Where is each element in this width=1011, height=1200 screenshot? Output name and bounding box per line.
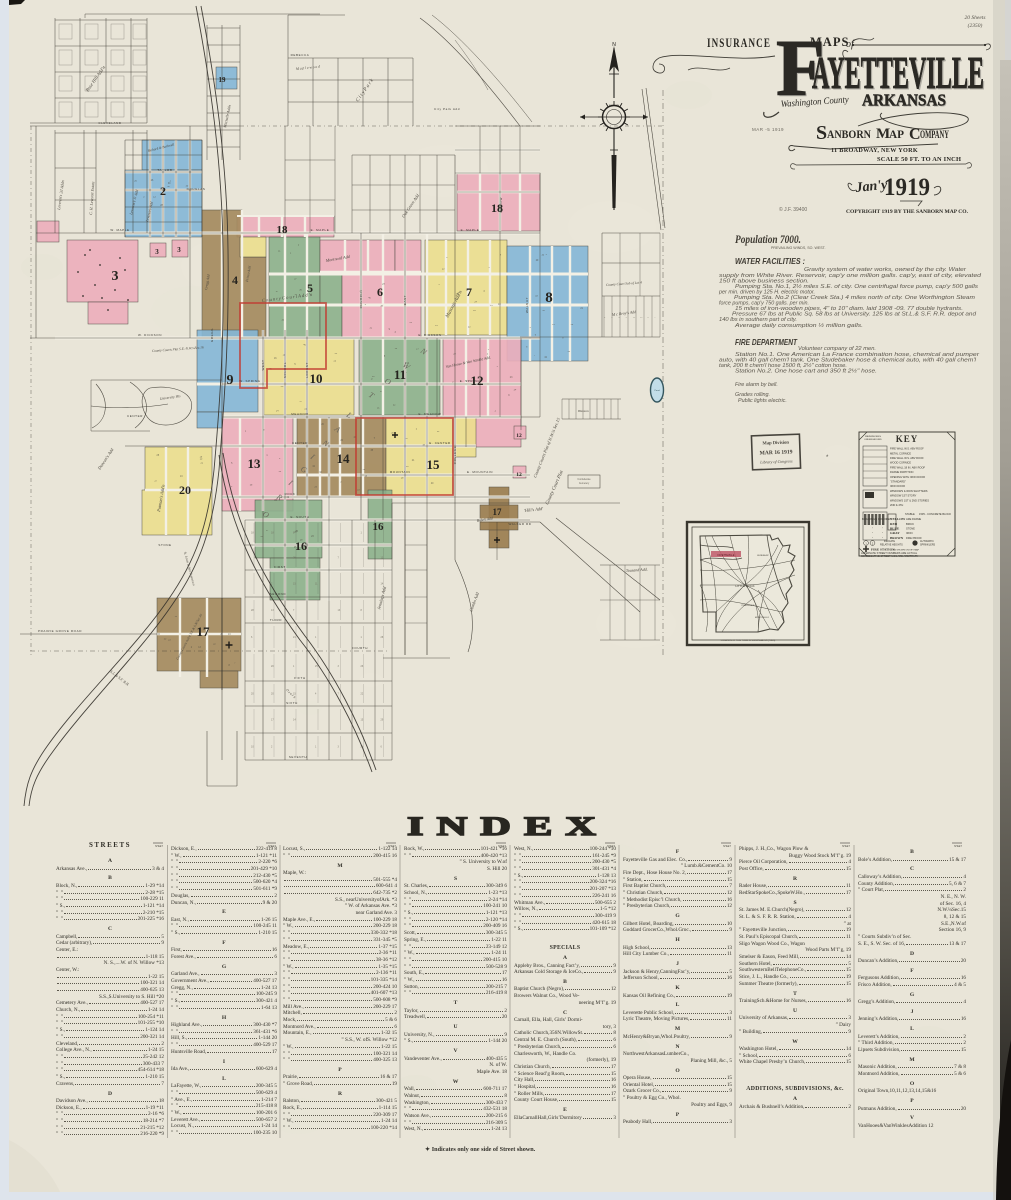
svg-text:9: 9 bbox=[227, 373, 234, 388]
svg-text:(2350): (2350) bbox=[968, 22, 983, 29]
svg-text:MAR -5 1919: MAR -5 1919 bbox=[752, 127, 784, 132]
svg-text:3: 3 bbox=[112, 269, 119, 284]
svg-text:12: 12 bbox=[516, 433, 522, 439]
svg-text:E. MAPLE: E. MAPLE bbox=[311, 228, 330, 232]
svg-text:MAR 16 1919: MAR 16 1919 bbox=[759, 449, 792, 456]
svg-text:N: N bbox=[612, 42, 616, 48]
svg-text:City Park Add: City Park Add bbox=[434, 107, 460, 111]
svg-text:WINDOW 1ST STORY: WINDOW 1ST STORY bbox=[890, 494, 917, 498]
svg-text:Pond: Pond bbox=[654, 390, 660, 392]
svg-text:16: 16 bbox=[373, 521, 385, 533]
svg-text:Average daily consumption ½ mi: Average daily consumption ½ million gall… bbox=[734, 322, 863, 329]
svg-text:STONE: STONE bbox=[906, 527, 915, 531]
svg-text:ANBORN: ANBORN bbox=[827, 127, 871, 141]
svg-text:RED: RED bbox=[890, 522, 898, 526]
svg-text:”: ” bbox=[882, 527, 883, 531]
svg-text:Cemetery: Cemetery bbox=[579, 482, 590, 485]
svg-text:PRAIRIE GROVE ROAD: PRAIRIE GROVE ROAD bbox=[38, 629, 82, 633]
svg-text:10: 10 bbox=[310, 371, 323, 386]
svg-text:SEVENTH: SEVENTH bbox=[289, 755, 307, 759]
svg-text:BRICK: BRICK bbox=[906, 522, 914, 526]
svg-text:6: 6 bbox=[377, 285, 383, 299]
svg-text:DOUGLAS: DOUGLAS bbox=[187, 187, 206, 191]
svg-text:3: 3 bbox=[177, 246, 181, 254]
svg-text:WILLOW: WILLOW bbox=[499, 197, 503, 213]
svg-text:MEADOW: MEADOW bbox=[291, 412, 308, 416]
svg-text:FIRE DEPARTMENT: FIRE DEPARTMENT bbox=[735, 337, 798, 347]
svg-text:17: 17 bbox=[493, 507, 503, 517]
svg-text:BUILDINGS COLORED: BUILDINGS COLORED bbox=[862, 517, 892, 521]
svg-text:”: ” bbox=[882, 531, 883, 535]
svg-text:SANBORN: SANBORN bbox=[609, 104, 619, 107]
svg-text:E. CENTER: E. CENTER bbox=[429, 441, 451, 445]
svg-text:OPENING WITH IRON DOOR: OPENING WITH IRON DOOR bbox=[890, 475, 925, 479]
svg-text:SCALE 50 FT. TO AN INCH: SCALE 50 FT. TO AN INCH bbox=[877, 156, 961, 163]
svg-text:IRON: IRON bbox=[906, 531, 913, 535]
svg-text:COPYRIGHT 1919 BY THE SANBORN: COPYRIGHT 1919 BY THE SANBORN MAP CO. bbox=[846, 209, 969, 215]
svg-text:Station No.2. One hose cart a: Station No.2. One hose cart and 350 ft 2… bbox=[735, 368, 877, 375]
svg-text:Confederate: Confederate bbox=[577, 478, 591, 481]
svg-text:CHURCH: CHURCH bbox=[359, 292, 363, 309]
svg-text:WATER FACILITIES :: WATER FACILITIES : bbox=[735, 256, 805, 266]
svg-text:BLUE: BLUE bbox=[890, 527, 900, 531]
svg-text:WINDOWS 1ST & 2ND STORIES: WINDOWS 1ST & 2ND STORIES bbox=[890, 498, 929, 502]
svg-text:ARKANSAS: ARKANSAS bbox=[862, 91, 946, 110]
svg-text:ARE FRAME: ARE FRAME bbox=[906, 517, 921, 521]
svg-text:Fire alarm by bell.: Fire alarm by bell. bbox=[735, 382, 778, 388]
svg-text:19: 19 bbox=[219, 76, 227, 84]
svg-text:WINDOWS & IRON SHUTTERS: WINDOWS & IRON SHUTTERS bbox=[890, 489, 928, 493]
svg-text:Public lights electric.: Public lights electric. bbox=[738, 398, 787, 404]
svg-text:FIRST: FIRST bbox=[274, 565, 286, 569]
svg-text:FIFTH: FIFTH bbox=[294, 676, 306, 680]
svg-text:STONE: STONE bbox=[158, 543, 171, 547]
svg-text:INSURANCE: INSURANCE bbox=[707, 36, 771, 50]
svg-text:SCHOOL: SCHOOL bbox=[283, 362, 287, 378]
svg-text:FRAME PARTITION: FRAME PARTITION bbox=[890, 470, 914, 474]
svg-text:PREVAILING WINDS, SO. WEST.: PREVAILING WINDS, SO. WEST. bbox=[771, 246, 826, 250]
svg-text:14: 14 bbox=[337, 451, 351, 466]
svg-text:”: ” bbox=[872, 536, 873, 540]
svg-text:18: 18 bbox=[277, 224, 289, 236]
svg-text:WALKER RD: WALKER RD bbox=[508, 522, 531, 526]
svg-text:SPRINKLERS: SPRINKLERS bbox=[920, 544, 936, 547]
svg-text:FOURTH: FOURTH bbox=[352, 646, 368, 650]
svg-text:E. DICKSON: E. DICKSON bbox=[418, 333, 441, 337]
svg-text:SECOND: SECOND bbox=[270, 592, 287, 596]
svg-text:”: ” bbox=[872, 522, 873, 526]
svg-text:CENTER: CENTER bbox=[292, 441, 308, 445]
svg-text:KEY: KEY bbox=[896, 434, 919, 444]
svg-text:20: 20 bbox=[179, 483, 191, 497]
svg-text:LOCATION OF THIS TOWN IS SHOW: LOCATION OF THIS TOWN IS SHOWN ABOVE(THU… bbox=[721, 639, 776, 642]
svg-text:WALNUT: WALNUT bbox=[525, 297, 529, 313]
svg-text:LITTLE ROCK: LITTLE ROCK bbox=[735, 584, 754, 588]
svg-text:13: 13 bbox=[248, 456, 262, 471]
svg-text:W. SPRING: W. SPRING bbox=[239, 379, 260, 383]
svg-text:CONSECUTIVE STREET NOS ARE ARB: CONSECUTIVE STREET NOS ARE ARBITRARY bbox=[861, 554, 919, 558]
svg-text:TAYLOR: TAYLOR bbox=[157, 168, 172, 172]
svg-text:11 BROADWAY, NEW YORK: 11 BROADWAY, NEW YORK bbox=[831, 147, 918, 154]
svg-text:E. MEADOW: E. MEADOW bbox=[419, 412, 442, 416]
svg-text:2: 2 bbox=[160, 184, 166, 198]
svg-text:17: 17 bbox=[197, 624, 211, 639]
svg-text:8: 8 bbox=[545, 290, 553, 306]
svg-text:2ND & 4TH: 2ND & 4TH bbox=[890, 503, 903, 507]
svg-text:W. MAPLE: W. MAPLE bbox=[110, 228, 129, 232]
svg-text:INDEX: INDEX bbox=[407, 812, 609, 841]
svg-text:✦ Indicates only one side of: ✦ Indicates only one side of Street show… bbox=[425, 1146, 536, 1153]
svg-text:Hanson: Hanson bbox=[577, 409, 589, 413]
svg-text:REBECCA: REBECCA bbox=[291, 53, 310, 57]
svg-text:THIRD: THIRD bbox=[270, 618, 282, 622]
svg-text:FIRE WALL W.S. ABV ROOF: FIRE WALL W.S. ABV ROOF bbox=[890, 456, 924, 460]
svg-text:16: 16 bbox=[295, 539, 307, 553]
svg-text:Map Division: Map Division bbox=[762, 440, 789, 446]
svg-text:”: ” bbox=[872, 527, 873, 531]
svg-text:E. SPRING: E. SPRING bbox=[460, 379, 481, 383]
svg-text:S: S bbox=[816, 122, 827, 144]
svg-text:AP: AP bbox=[889, 127, 904, 141]
svg-text:YELLOW: YELLOW bbox=[890, 517, 906, 521]
svg-text:7: 7 bbox=[466, 285, 472, 299]
svg-text:COLLEGE: COLLEGE bbox=[453, 446, 457, 464]
svg-text:SIXTH: SIXTH bbox=[286, 701, 298, 705]
svg-text:WEST: WEST bbox=[261, 359, 265, 370]
svg-text:UNDERGROUND: UNDERGROUND bbox=[864, 439, 882, 441]
svg-text:WATERWORKS: WATERWORKS bbox=[865, 435, 881, 438]
svg-text:MONTICELLO: MONTICELLO bbox=[755, 617, 770, 619]
svg-text:LOCUST: LOCUST bbox=[305, 362, 309, 378]
svg-text:W. DICKSON: W. DICKSON bbox=[138, 333, 162, 337]
svg-text:4: 4 bbox=[232, 273, 238, 287]
svg-text:1919: 1919 bbox=[884, 174, 930, 201]
svg-text:12: 12 bbox=[516, 472, 522, 478]
svg-text:FIRE WALL 18 IN. ABV ROOF: FIRE WALL 18 IN. ABV ROOF bbox=[890, 465, 926, 469]
svg-text:MOUNTAIN: MOUNTAIN bbox=[390, 470, 411, 474]
svg-text:E. MAPLE: E. MAPLE bbox=[461, 228, 480, 232]
svg-text:OMPANY: OMPANY bbox=[920, 127, 949, 141]
svg-text:FAYETTEVILLE: FAYETTEVILLE bbox=[718, 554, 735, 557]
svg-text:C: C bbox=[909, 126, 921, 143]
svg-text:CLEVELAND: CLEVELAND bbox=[98, 121, 121, 125]
svg-text:FIRE WALL W.S. ABV ROOF: FIRE WALL W.S. ABV ROOF bbox=[890, 447, 924, 451]
svg-text:15: 15 bbox=[427, 457, 441, 472]
svg-text:GRAY: GRAY bbox=[890, 531, 900, 535]
svg-text:1535 - CONCRETE BLOCK: 1535 - CONCRETE BLOCK bbox=[919, 512, 951, 516]
svg-text:”: ” bbox=[882, 536, 883, 540]
svg-text:E. SOUTH: E. SOUTH bbox=[291, 515, 310, 519]
svg-text:”: ” bbox=[882, 522, 883, 526]
svg-text:EUREKA SP: EUREKA SP bbox=[757, 554, 769, 557]
svg-text:“STANDARD”: “STANDARD” bbox=[890, 480, 906, 484]
svg-text:METAL CORNICE: METAL CORNICE bbox=[890, 451, 911, 455]
svg-text:GREGG: GREGG bbox=[210, 328, 214, 342]
svg-text:20 Sheets: 20 Sheets bbox=[965, 15, 986, 21]
svg-text:PINE BLUFF: PINE BLUFF bbox=[742, 605, 755, 607]
svg-text:CENTER: CENTER bbox=[127, 414, 143, 418]
svg-text:STABLE: STABLE bbox=[905, 512, 915, 516]
svg-text:”: ” bbox=[872, 531, 873, 535]
svg-text:WOOD CORNICE: WOOD CORNICE bbox=[890, 461, 911, 465]
svg-text:ROCK: ROCK bbox=[284, 492, 295, 496]
svg-text:© J.F. 39400: © J.F. 39400 bbox=[779, 206, 807, 213]
svg-text:3: 3 bbox=[155, 248, 159, 256]
svg-text:IRON DOOR: IRON DOOR bbox=[890, 484, 905, 488]
svg-text:E. MOUNTAIN: E. MOUNTAIN bbox=[467, 470, 493, 474]
svg-text:Population 7000.: Population 7000. bbox=[735, 232, 801, 246]
svg-text:EAST: EAST bbox=[403, 295, 407, 305]
svg-text:RELATIVE HEIGHTS: RELATIVE HEIGHTS bbox=[880, 544, 903, 547]
